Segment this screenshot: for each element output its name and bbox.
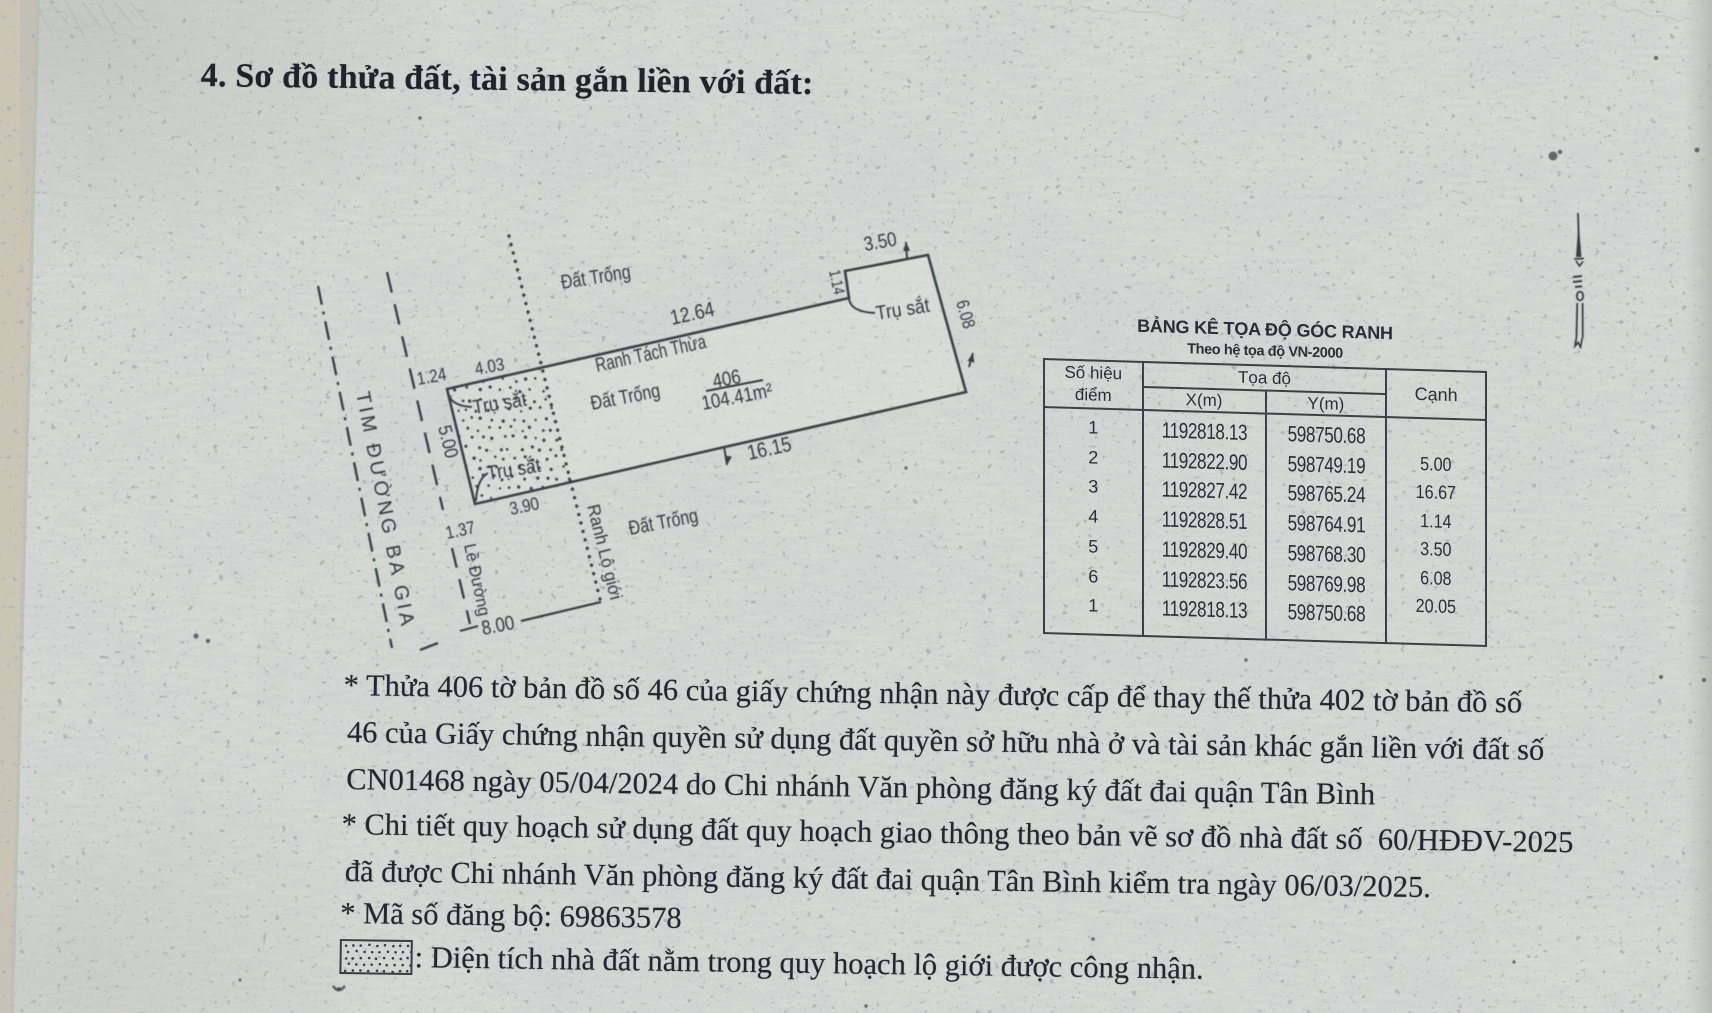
svg-text:Ranh Lộ giới: Ranh Lộ giới: [583, 502, 627, 602]
svg-text:1.14: 1.14: [825, 268, 847, 296]
svg-text:1.24: 1.24: [415, 364, 448, 389]
svg-text:1.37: 1.37: [444, 517, 477, 543]
svg-text:TIM ĐƯỜNG BA GIA: TIM ĐƯỜNG BA GIA: [351, 390, 420, 631]
svg-text:6.08: 6.08: [952, 298, 979, 331]
svg-text:3.50: 3.50: [862, 227, 898, 255]
svg-text:12.64: 12.64: [668, 297, 717, 330]
svg-text:3.90: 3.90: [508, 493, 541, 519]
svg-text:Lề Đường: Lề Đường: [460, 542, 494, 618]
svg-text:Đất Trống: Đất Trống: [627, 504, 700, 539]
svg-text:Đất Trống: Đất Trống: [559, 261, 632, 294]
